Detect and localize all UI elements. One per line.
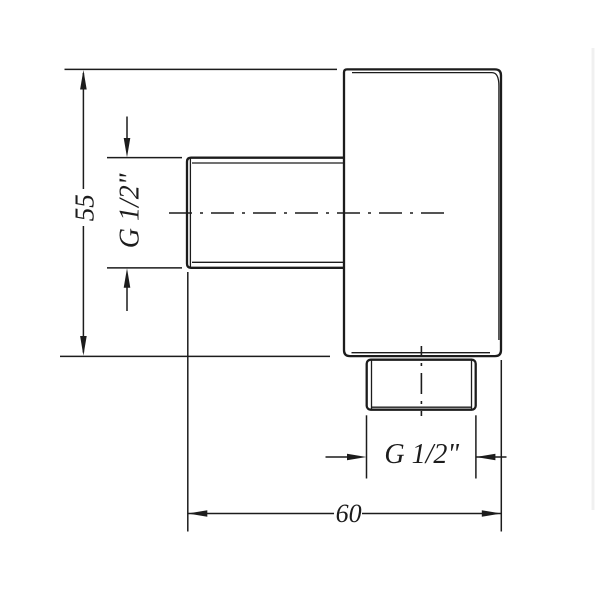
svg-text:G 1/2": G 1/2"	[115, 173, 146, 248]
svg-text:55: 55	[70, 194, 100, 221]
svg-text:60: 60	[336, 499, 362, 528]
svg-text:G 1/2": G 1/2"	[384, 439, 459, 470]
